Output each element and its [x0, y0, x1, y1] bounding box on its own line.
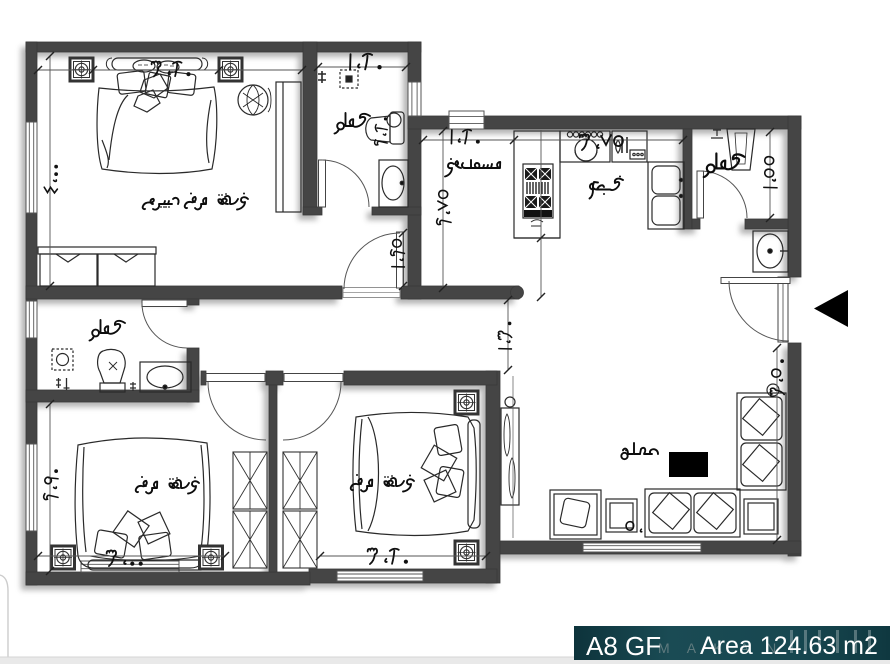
svg-text:Area 124.63 m2: Area 124.63 m2 — [700, 632, 878, 660]
svg-text:A8 GF: A8 GF — [586, 631, 661, 661]
